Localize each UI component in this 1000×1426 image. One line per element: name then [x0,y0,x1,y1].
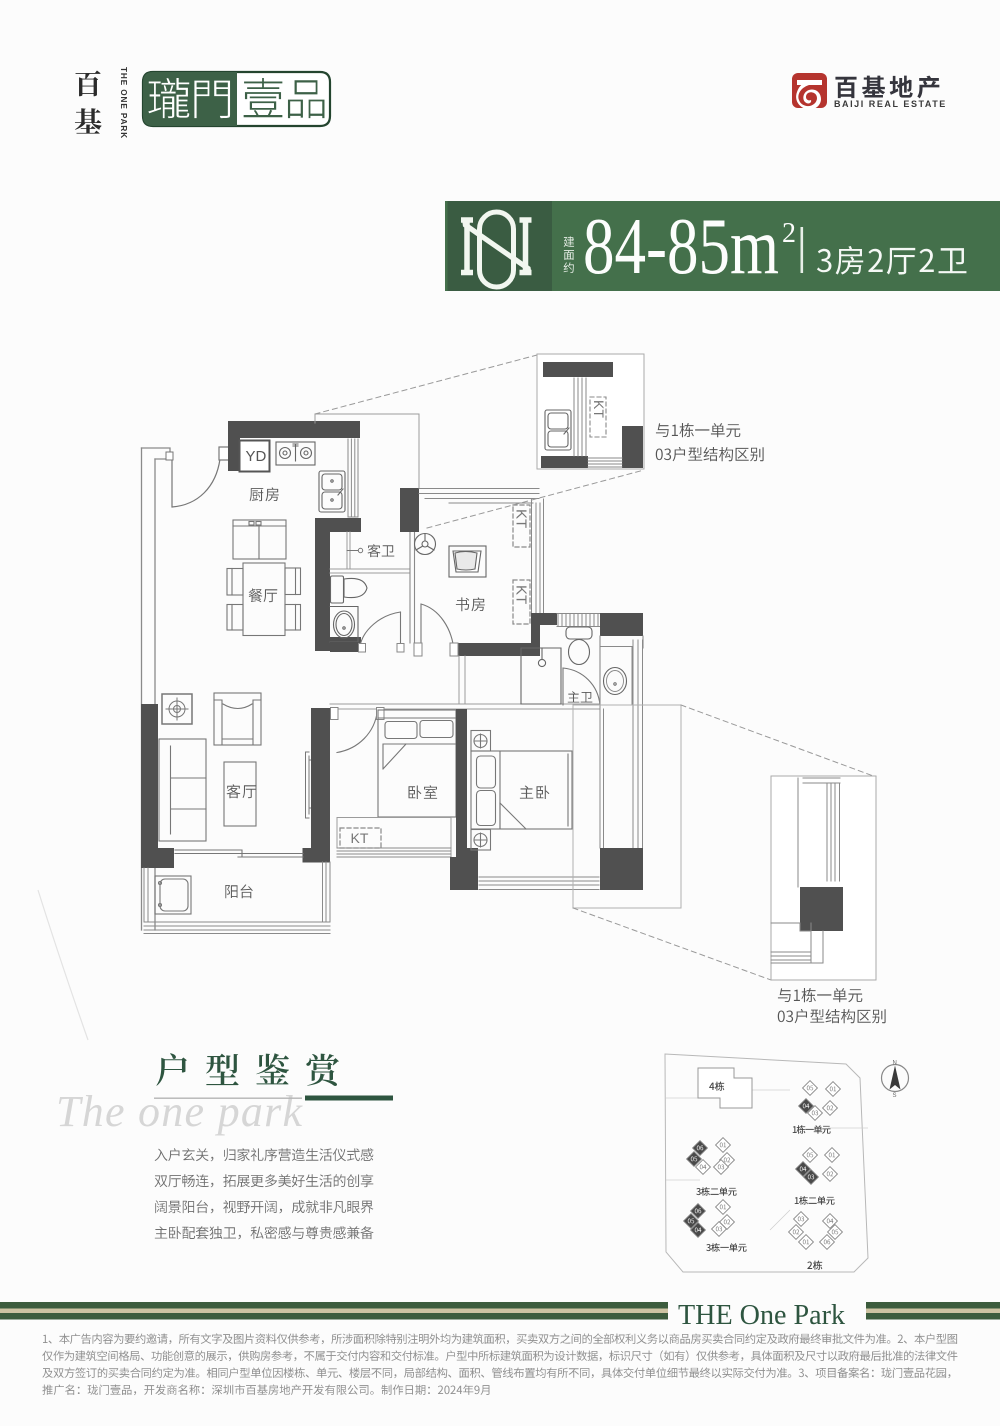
svg-text:KT: KT [513,585,530,604]
svg-text:YD: YD [246,448,267,465]
svg-text:KT: KT [591,400,607,418]
svg-text:84-85m: 84-85m [583,201,779,291]
svg-text:KT: KT [351,830,369,846]
svg-text:2: 2 [782,218,796,249]
svg-text:KT: KT [513,509,530,528]
svg-text:The one park: The one park [56,1087,303,1136]
svg-text:BAIJI REAL ESTATE: BAIJI REAL ESTATE [834,99,947,109]
svg-text:N: N [893,1061,897,1067]
svg-text:THE One Park: THE One Park [678,1299,845,1331]
svg-text:S: S [893,1093,897,1099]
svg-text:THE ONE PARK: THE ONE PARK [119,67,128,139]
